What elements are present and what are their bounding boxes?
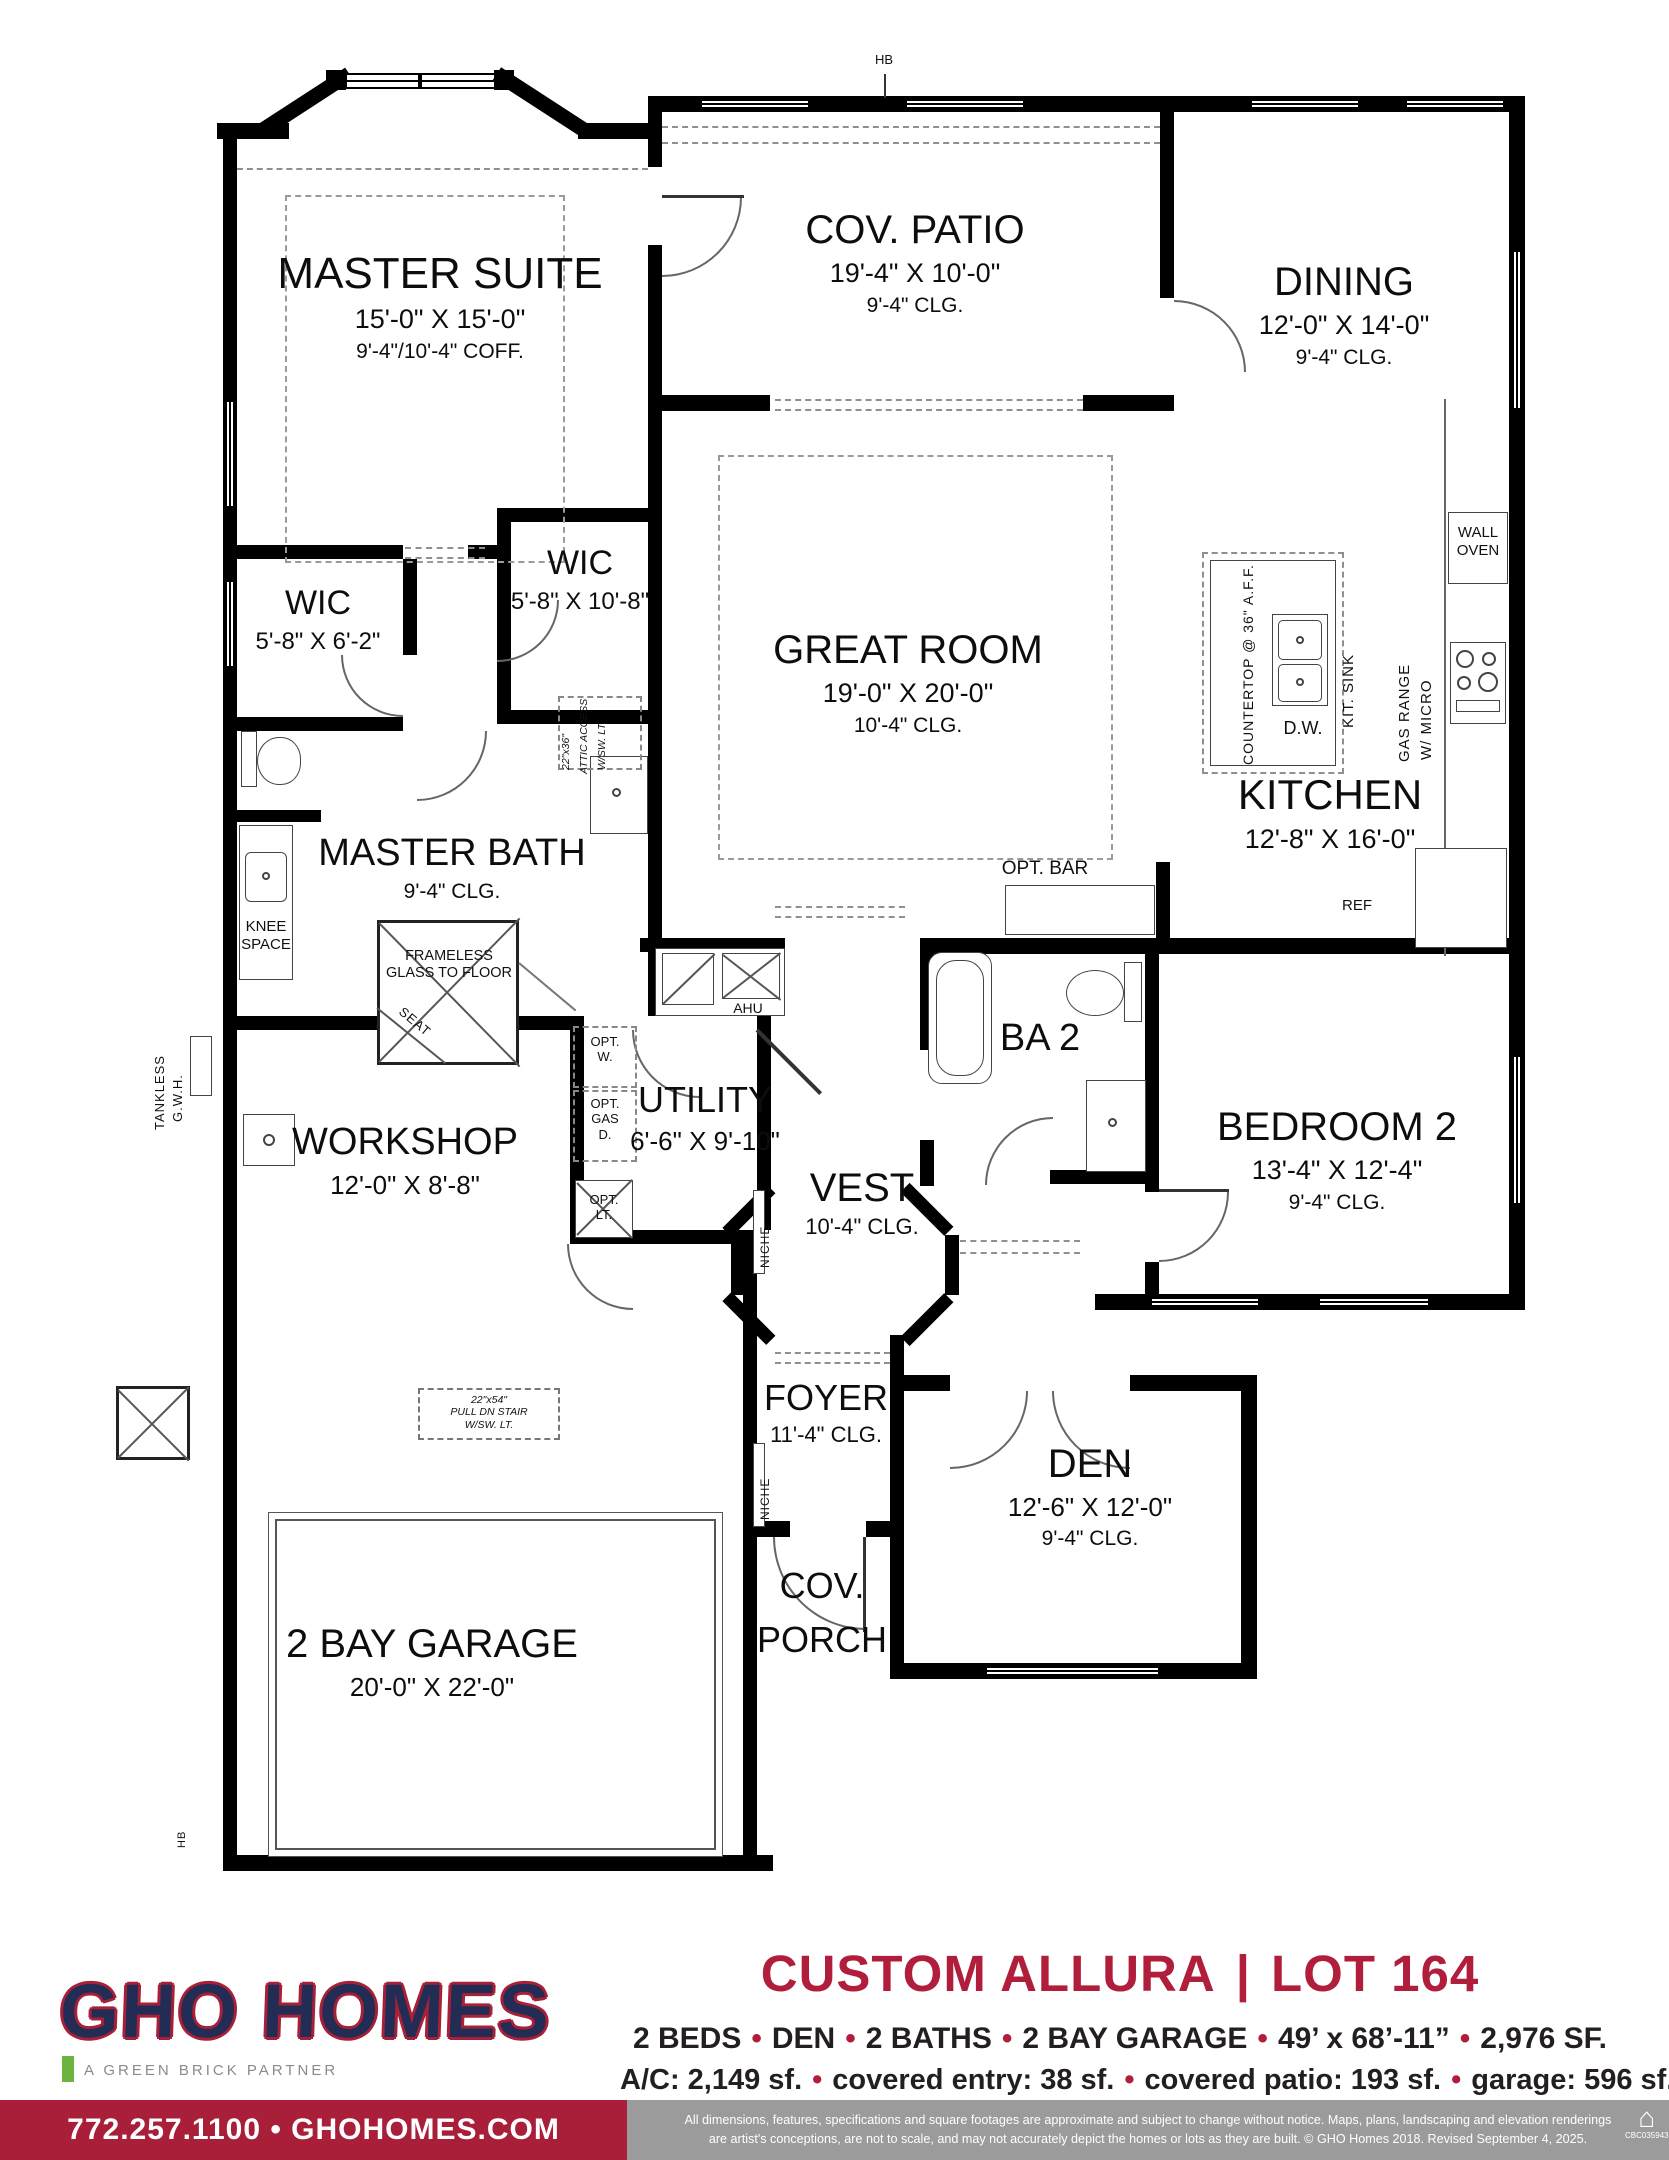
room-label-workshop: WORKSHOP 12'-0" X 8'-8" xyxy=(255,1122,555,1199)
phone-website: 772.257.1100 • GHOHOMES.COM xyxy=(67,2113,560,2147)
niche-label-foyer: NICHE xyxy=(758,1450,772,1520)
door-arc xyxy=(567,1244,633,1310)
room-label-wic-1: WIC 5'-8" X 6'-2" xyxy=(218,585,418,656)
plan-name: CUSTOM ALLURA xyxy=(761,1945,1216,2002)
window xyxy=(700,99,810,109)
bullet: • xyxy=(1124,2064,1134,2096)
wall xyxy=(1145,1262,1159,1298)
slider-opening xyxy=(775,399,1083,401)
pulldown-stair-label: 22"x54" PULL DN STAIR W/SW. LT. xyxy=(420,1394,558,1431)
niche-label-vest: NICHE xyxy=(758,1198,772,1268)
cased-opening xyxy=(960,1240,1080,1242)
wall xyxy=(1156,862,1170,942)
green-brick-tagline: A GREEN BRICK PARTNER xyxy=(84,2062,338,2079)
burner xyxy=(1478,672,1498,692)
green-brick-icon xyxy=(62,2056,74,2082)
patio-roof-line xyxy=(662,126,1160,128)
wall xyxy=(1241,1375,1257,1679)
gas-range-label-2: W/ MICRO xyxy=(1418,600,1435,760)
wall xyxy=(648,245,662,724)
room-label-den: DEN 12'-6" X 12'-0" 9'-4" CLG. xyxy=(940,1442,1240,1550)
hose-bib-label: HB xyxy=(862,52,906,67)
stats-line-2: A/C: 2,149 sf.•covered entry: 38 sf.•cov… xyxy=(620,2064,1620,2097)
bay-window-wall xyxy=(493,67,588,136)
sink-drain xyxy=(1296,678,1304,686)
wall xyxy=(648,125,662,167)
opt-gas-dryer-label: OPT. GAS D. xyxy=(574,1096,636,1142)
door-arc xyxy=(662,197,742,277)
wall xyxy=(1050,1170,1145,1184)
wall xyxy=(326,70,346,90)
bullet: • xyxy=(1002,2022,1013,2055)
knee-space-label: KNEE SPACE xyxy=(224,918,308,953)
dishwasher-label: D.W. xyxy=(1278,718,1328,739)
attic-access-label-1: 22"x36" xyxy=(560,694,572,770)
sink-drain xyxy=(1296,636,1304,644)
wall xyxy=(223,1855,773,1871)
bullet: • xyxy=(751,2022,762,2055)
cased-opening xyxy=(960,1252,1080,1254)
bullet: • xyxy=(1460,2022,1471,2055)
wall xyxy=(223,123,237,1871)
door-arc xyxy=(985,1117,1053,1185)
opt-bar-counter xyxy=(1005,885,1155,935)
opt-bar-label: OPT. BAR xyxy=(985,858,1105,880)
disclaimer-line-1: All dimensions, features, specifications… xyxy=(678,2111,1618,2130)
toilet-tank xyxy=(1124,962,1142,1022)
room-label-cov-porch: COV. PORCH xyxy=(722,1566,922,1659)
license-number: CBC035943 xyxy=(1625,2132,1669,2140)
wall xyxy=(223,717,403,731)
toilet-bowl xyxy=(257,737,301,785)
bullet: • xyxy=(845,2022,856,2055)
refrigerator-box xyxy=(1415,848,1507,948)
room-label-kitchen: KITCHEN 12'-8" X 16'-0" xyxy=(1180,772,1480,855)
bullet: • xyxy=(1257,2022,1268,2055)
window xyxy=(1512,250,1522,410)
patio-roof-line xyxy=(662,142,1160,144)
room-label-vest: VEST 10'-4" CLG. xyxy=(752,1166,972,1239)
hose-bib-tick xyxy=(884,74,886,98)
refrigerator-label: REF xyxy=(1332,897,1382,915)
cased-opening xyxy=(775,906,905,908)
sink-drain xyxy=(262,872,270,880)
toilet-bowl xyxy=(1066,970,1124,1016)
contact-bar: 772.257.1100 • GHOHOMES.COM xyxy=(0,2100,627,2160)
gho-homes-logo: GHO HOMES xyxy=(58,1968,552,2055)
disclaimer-bar: All dimensions, features, specifications… xyxy=(627,2100,1669,2160)
sink-drain xyxy=(1108,1118,1117,1127)
bullet: • xyxy=(812,2064,822,2096)
cased-opening xyxy=(775,1362,890,1364)
floor-plan-sheet: MASTER SUITE 15'-0" X 15'-0" 9'-4"/10'-4… xyxy=(0,0,1669,2160)
door-arc xyxy=(341,655,403,717)
wall xyxy=(731,1235,745,1295)
stats-line-1: 2 BEDS•DEN•2 BATHS•2 BAY GARAGE•49’ x 68… xyxy=(620,2022,1620,2056)
cased-opening xyxy=(405,557,485,559)
window xyxy=(1318,1297,1430,1307)
plan-title: CUSTOM ALLURA|LOT 164 xyxy=(720,1944,1520,2003)
gas-range-label-1: GAS RANGE xyxy=(1396,592,1413,762)
opt-washer-label: OPT. W. xyxy=(574,1034,636,1065)
lot-number: LOT 164 xyxy=(1271,1945,1479,2002)
room-label-foyer: FOYER 11'-4" CLG. xyxy=(716,1378,936,1447)
disclaimer-line-2: are artist's conceptions, are not to sca… xyxy=(678,2130,1618,2149)
room-label-cov-patio: COV. PATIO 19'-4" X 10'-0" 9'-4" CLG. xyxy=(765,208,1065,317)
window xyxy=(1512,1055,1522,1205)
opt-laundry-tub-label: OPT. LT. xyxy=(576,1192,632,1223)
bullet: • xyxy=(1451,2064,1461,2096)
burner xyxy=(1482,652,1496,666)
range-control xyxy=(1456,700,1500,712)
toilet-tank xyxy=(241,731,257,787)
wall-oven-label: WALL OVEN xyxy=(1448,524,1508,559)
wall xyxy=(223,810,321,822)
wall xyxy=(890,1335,904,1380)
tankless-water-heater xyxy=(190,1036,212,1096)
room-label-bedroom2: BEDROOM 2 13'-4" X 12'-4" 9'-4" CLG. xyxy=(1167,1105,1507,1214)
cased-opening xyxy=(775,1352,890,1354)
hose-bib-label-bottom: HB xyxy=(176,1808,188,1848)
wall xyxy=(1130,1375,1241,1391)
burner xyxy=(1456,650,1474,668)
window xyxy=(1250,99,1360,109)
attic-access-label-2: ATTIC ACCESS xyxy=(578,690,590,774)
sink-drain xyxy=(612,788,621,797)
vanity xyxy=(1086,1080,1146,1172)
window xyxy=(1150,1297,1260,1307)
wall xyxy=(648,395,770,411)
room-label-master-bath: MASTER BATH 9'-4" CLG. xyxy=(282,833,622,903)
room-label-ba2: BA 2 xyxy=(960,1018,1120,1060)
wall xyxy=(743,1521,790,1537)
cased-opening xyxy=(775,916,905,918)
shower-door-leaf xyxy=(518,962,576,1011)
tankless-label-2: G.W.H. xyxy=(170,1028,185,1122)
door-arc xyxy=(417,731,487,801)
kit-sink-label: KIT. SINK xyxy=(1340,618,1357,728)
wall xyxy=(1083,395,1174,411)
cased-opening xyxy=(405,547,485,549)
slider-opening xyxy=(775,409,1083,411)
room-label-great-room: GREAT ROOM 19'-0" X 20'-0" 10'-4" CLG. xyxy=(738,628,1078,737)
window xyxy=(905,99,1025,109)
countertop-label: COUNTERTOP @ 36" A.F.F. xyxy=(1240,565,1256,765)
frameless-glass-label: FRAMELESS GLASS TO FLOOR xyxy=(383,948,515,982)
burner xyxy=(1457,676,1471,690)
equal-housing-icon: ⌂ CBC035943 xyxy=(1625,2104,1669,2140)
room-label-wic-2: WIC 5'-8" X 10'-8" xyxy=(480,545,680,616)
window xyxy=(1405,99,1505,109)
title-divider: | xyxy=(1236,1945,1251,2002)
wall xyxy=(1145,952,1159,1192)
window xyxy=(225,400,235,508)
roof-line xyxy=(237,168,648,170)
room-label-master-suite: MASTER SUITE 15'-0" X 15'-0" 9'-4"/10'-4… xyxy=(270,250,610,363)
door-leaf xyxy=(662,195,744,198)
attic-access-label-3: W/SW. LT. xyxy=(596,694,608,770)
window xyxy=(985,1666,1160,1676)
wall xyxy=(1160,112,1174,298)
room-label-dining: DINING 12'-0" X 14'-0" 9'-4" CLG. xyxy=(1194,260,1494,369)
wall xyxy=(945,1235,959,1295)
vest-diagonal-wall xyxy=(900,1293,953,1346)
room-label-garage: 2 BAY GARAGE 20'-0" X 22'-0" xyxy=(232,1622,632,1702)
bay-mullion xyxy=(418,73,422,89)
ahu-label: AHU xyxy=(718,1000,778,1017)
tankless-label-1: TANKLESS xyxy=(152,1020,167,1130)
